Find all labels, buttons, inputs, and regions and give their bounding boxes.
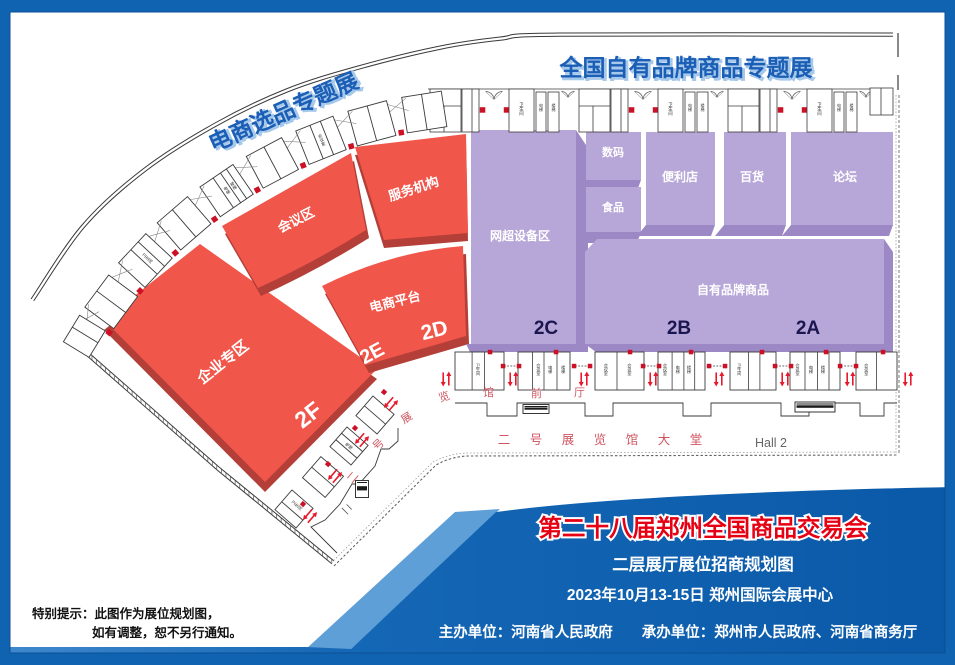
svg-text:大: 大 bbox=[658, 433, 671, 447]
svg-text:2023年10月13-15日 郑州国际会展中心: 2023年10月13-15日 郑州国际会展中心 bbox=[567, 585, 834, 604]
svg-text:览: 览 bbox=[594, 432, 607, 447]
svg-text:卫生间: 卫生间 bbox=[476, 363, 480, 377]
svg-text:卫生间: 卫生间 bbox=[817, 102, 822, 117]
svg-text:2C: 2C bbox=[534, 318, 559, 339]
svg-text:第二十八届郑州全国商品交易会: 第二十八届郑州全国商品交易会 bbox=[539, 514, 868, 541]
svg-text:论坛: 论坛 bbox=[833, 169, 857, 184]
svg-text:便利店: 便利店 bbox=[662, 169, 698, 184]
svg-text:楼梯: 楼梯 bbox=[561, 364, 565, 375]
svg-text:号: 号 bbox=[530, 433, 543, 447]
svg-text:楼梯: 楼梯 bbox=[701, 102, 705, 112]
svg-text:如有调整，恕不另行通知。: 如有调整，恕不另行通知。 bbox=[92, 625, 242, 640]
svg-text:Hall 2: Hall 2 bbox=[755, 436, 787, 450]
svg-text:全国自有品牌商品专题展: 全国自有品牌商品专题展 bbox=[559, 55, 813, 81]
svg-text:食品: 食品 bbox=[602, 200, 624, 214]
svg-text:楼梯: 楼梯 bbox=[687, 364, 691, 375]
svg-text:2B: 2B bbox=[667, 318, 691, 339]
svg-text:百货: 百货 bbox=[740, 169, 764, 184]
svg-text:馆: 馆 bbox=[483, 385, 494, 399]
svg-text:楼梯: 楼梯 bbox=[821, 364, 825, 375]
svg-text:厅: 厅 bbox=[574, 387, 585, 399]
svg-text:电梯: 电梯 bbox=[539, 102, 543, 112]
svg-text:特别提示：此图作为展位规划图，: 特别提示：此图作为展位规划图， bbox=[32, 606, 220, 621]
svg-text:展: 展 bbox=[562, 433, 575, 447]
svg-text:二: 二 bbox=[498, 433, 511, 447]
svg-text:电梯: 电梯 bbox=[837, 102, 841, 112]
svg-text:数码: 数码 bbox=[602, 145, 624, 159]
svg-text:网超设备区: 网超设备区 bbox=[490, 228, 550, 243]
svg-text:楼梯: 楼梯 bbox=[552, 102, 556, 112]
svg-text:卫生间: 卫生间 bbox=[737, 363, 741, 377]
svg-text:馆: 馆 bbox=[626, 432, 639, 447]
svg-text:卫生间: 卫生间 bbox=[668, 102, 673, 117]
svg-text:堂: 堂 bbox=[690, 433, 703, 447]
svg-text:主办单位：河南省人民政府 承办单位：郑州市人民政府、河南省: 主办单位：河南省人民政府 承办单位：郑州市人民政府、河南省商务厅 bbox=[439, 623, 918, 641]
svg-text:卫生间: 卫生间 bbox=[519, 102, 524, 117]
svg-text:自有品牌商品: 自有品牌商品 bbox=[697, 282, 769, 297]
svg-text:二层展厅展位招商规划图: 二层展厅展位招商规划图 bbox=[612, 554, 794, 574]
svg-text:楼梯: 楼梯 bbox=[850, 102, 854, 112]
svg-text:2A: 2A bbox=[796, 318, 821, 339]
svg-text:电梯: 电梯 bbox=[688, 102, 692, 112]
svg-text:前: 前 bbox=[531, 386, 542, 400]
